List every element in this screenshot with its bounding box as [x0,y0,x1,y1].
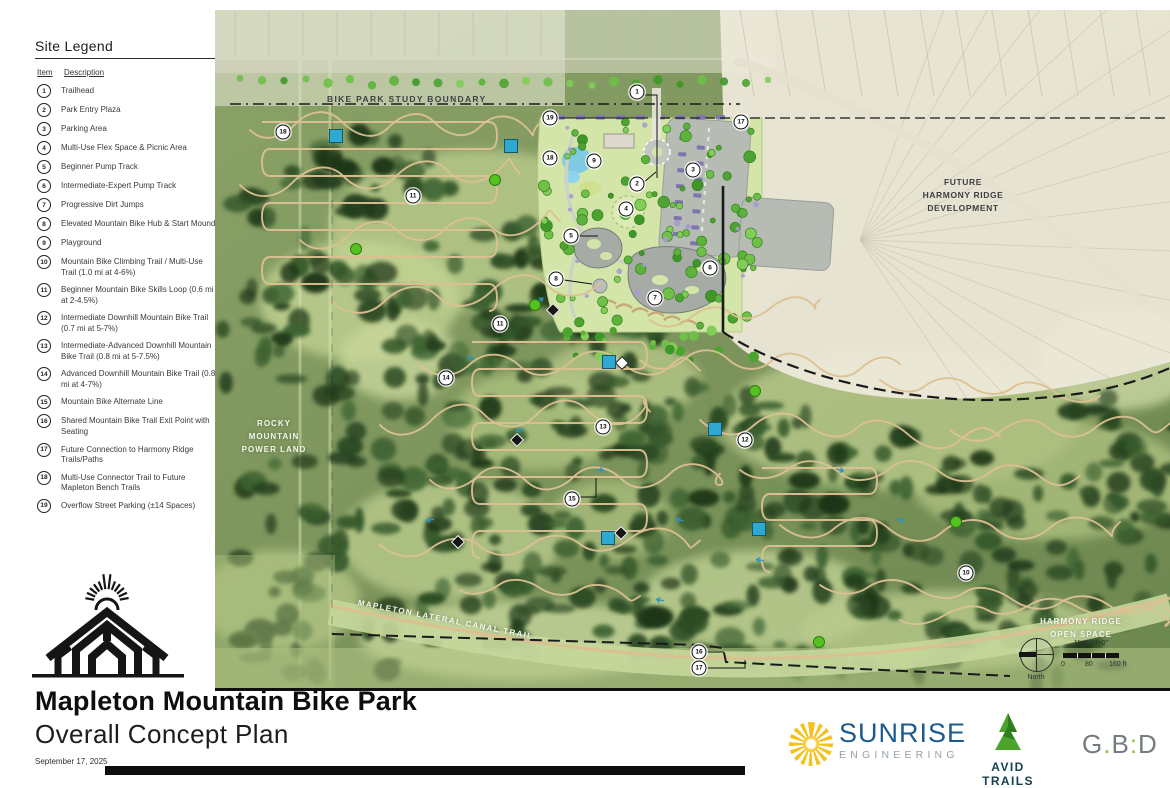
legend-row: 5Beginner Pump Track [35,160,217,174]
legend-item-number: 13 [37,339,51,353]
legend-col-description: Description [64,68,104,77]
bottom-rule-bar [105,766,745,775]
sunrise-engineering-logo: SUNRISE ENGINEERING [789,720,966,766]
page-date: September 17, 2025 [35,757,108,766]
avid-trails-logo: AVID TRAILS [966,712,1050,788]
map-marker-12: 12 [738,433,753,448]
scale-ratio: 1" = 80'-0" [1061,638,1121,647]
legend-items: 1Trailhead2Park Entry Plaza3Parking Area… [35,84,217,513]
legend-item-text: Intermediate-Expert Pump Track [61,179,217,192]
legend-item-text: Park Entry Plaza [61,103,217,116]
legend-item-number: 19 [37,499,51,513]
blue-square-marker [329,129,343,143]
legend-item-text: Shared Mountain Bike Trail Exit Point wi… [61,414,217,437]
map-marker-2: 2 [630,177,645,192]
legend-item-number: 3 [37,122,51,136]
legend-item-text: Beginner Mountain Bike Skills Loop (0.6 … [61,283,217,306]
map-marker-18: 18 [543,151,558,166]
marker-layer: 11917181893211456871114131215101617 [215,10,1170,688]
legend-item-text: Multi-Use Connector Trail to Future Mapl… [61,471,217,494]
legend-row: 4Multi-Use Flex Space & Picnic Area [35,141,217,155]
legend-item-number: 1 [37,84,51,98]
map-marker-6: 6 [703,261,718,276]
legend-item-text: Overflow Street Parking (±14 Spaces) [61,499,217,512]
sunrise-sun-icon [789,722,833,766]
legend-row: 14Advanced Downhill Mountain Bike Trail … [35,367,217,390]
legend-row: 13Intermediate-Advanced Downhill Mountai… [35,339,217,362]
legend-item-text: Mountain Bike Climbing Trail / Multi-Use… [61,255,217,278]
legend-row: 10Mountain Bike Climbing Trail / Multi-U… [35,255,217,278]
legend-item-number: 8 [37,217,51,231]
legend-item-number: 14 [37,367,51,381]
map-marker-18: 18 [276,125,291,140]
map-marker-10: 10 [959,566,974,581]
legend-item-number: 18 [37,471,51,485]
legend-row: 12Intermediate Downhill Mountain Bike Tr… [35,311,217,334]
boundary-label: BIKE PARK STUDY BOUNDARY [327,94,487,104]
future-development-label: FUTURE HARMONY RIDGE DEVELOPMENT [883,176,1043,216]
north-label: North [1019,674,1053,681]
legend-item-text: Advanced Downhill Mountain Bike Trail (0… [61,367,217,390]
legend-item-number: 9 [37,236,51,250]
legend-row: 11Beginner Mountain Bike Skills Loop (0.… [35,283,217,306]
legend-row: 15Mountain Bike Alternate Line [35,395,217,409]
legend-item-number: 7 [37,198,51,212]
blue-square-marker [601,531,615,545]
map-marker-9: 9 [587,154,602,169]
map-marker-13: 13 [596,420,611,435]
legend-item-text: Mountain Bike Alternate Line [61,395,217,408]
blue-square-marker [708,422,722,436]
legend-item-number: 17 [37,443,51,457]
sunrise-name: SUNRISE [839,720,966,747]
map-marker-16: 16 [692,645,707,660]
legend-row: 17Future Connection to Harmony Ridge Tra… [35,443,217,466]
green-dot-marker [350,243,362,255]
map-marker-5: 5 [564,229,579,244]
legend-col-item: Item [37,68,64,77]
black-diamond-marker [546,303,560,317]
green-dot-marker [529,299,541,311]
legend-item-text: Progressive Dirt Jumps [61,198,217,211]
map-marker-15: 15 [565,492,580,507]
avid-trails-name: AVID TRAILS [966,760,1050,788]
green-dot-marker [950,516,962,528]
scale-bar [1063,653,1119,658]
black-diamond-marker [451,535,465,549]
map-marker-4: 4 [619,202,634,217]
legend-row: 3Parking Area [35,122,217,136]
legend-item-number: 11 [37,283,51,297]
legend-item-text: Parking Area [61,122,217,135]
legend-row: 16Shared Mountain Bike Trail Exit Point … [35,414,217,437]
legend-row: 8Elevated Mountain Bike Hub & Start Moun… [35,217,217,231]
white-diamond-marker [615,356,629,370]
legend-title: Site Legend [35,38,217,59]
legend-item-number: 4 [37,141,51,155]
legend-item-number: 16 [37,414,51,428]
legend-item-number: 12 [37,311,51,325]
legend-row: 2Park Entry Plaza [35,103,217,117]
legend-item-text: Intermediate Downhill Mountain Bike Trai… [61,311,217,334]
map-marker-19: 19 [543,111,558,126]
legend-item-text: Playground [61,236,217,249]
map-marker-3: 3 [686,163,701,178]
avid-tree-icon [987,712,1029,752]
page-subtitle: Overall Concept Plan [35,719,289,750]
legend-item-text: Trailhead [61,84,217,97]
sunrise-subname: ENGINEERING [839,749,966,761]
map-marker-1: 1 [630,85,645,100]
legend-row: 9Playground [35,236,217,250]
map-marker-8: 8 [549,272,564,287]
legend-item-number: 5 [37,160,51,174]
legend-item-number: 10 [37,255,51,269]
page-title: Mapleton Mountain Bike Park [35,686,417,717]
blue-square-marker [752,522,766,536]
map-marker-14: 14 [439,371,454,386]
green-dot-marker [813,636,825,648]
legend-item-number: 2 [37,103,51,117]
green-dot-marker [489,174,501,186]
rocky-mountain-power-label: ROCKY MOUNTAIN POWER LAND [221,418,327,456]
legend-row: 7Progressive Dirt Jumps [35,198,217,212]
legend-column-headers: Item Description [37,68,217,77]
site-legend: Site Legend Item Description 1Trailhead2… [35,38,217,518]
legend-item-text: Future Connection to Harmony Ridge Trail… [61,443,217,466]
legend-row: 19Overflow Street Parking (±14 Spaces) [35,499,217,513]
black-diamond-marker [614,526,628,540]
legend-item-number: 15 [37,395,51,409]
legend-item-text: Multi-Use Flex Space & Picnic Area [61,141,217,154]
gbd-logo: G.B:D [1082,729,1158,760]
blue-square-marker [602,355,616,369]
blue-square-marker [504,139,518,153]
legend-item-number: 6 [37,179,51,193]
north-arrow-icon [1020,638,1054,672]
map-marker-17: 17 [734,115,749,130]
legend-item-text: Elevated Mountain Bike Hub & Start Mound [61,217,217,230]
green-dot-marker [749,385,761,397]
concept-plan-map: 11917181893211456871114131215101617 BIKE… [215,10,1170,691]
concept-plan-page: { "legend": { "title": "Site Legend", "c… [0,0,1170,780]
legend-item-text: Intermediate-Advanced Downhill Mountain … [61,339,217,362]
legend-row: 18Multi-Use Connector Trail to Future Ma… [35,471,217,494]
map-marker-11: 11 [493,317,508,332]
legend-row: 1Trailhead [35,84,217,98]
mapleton-city-logo [30,572,186,689]
map-marker-17: 17 [692,661,707,676]
black-diamond-marker [510,433,524,447]
legend-row: 6Intermediate-Expert Pump Track [35,179,217,193]
legend-item-text: Beginner Pump Track [61,160,217,173]
map-marker-11: 11 [406,189,421,204]
map-marker-7: 7 [648,291,663,306]
